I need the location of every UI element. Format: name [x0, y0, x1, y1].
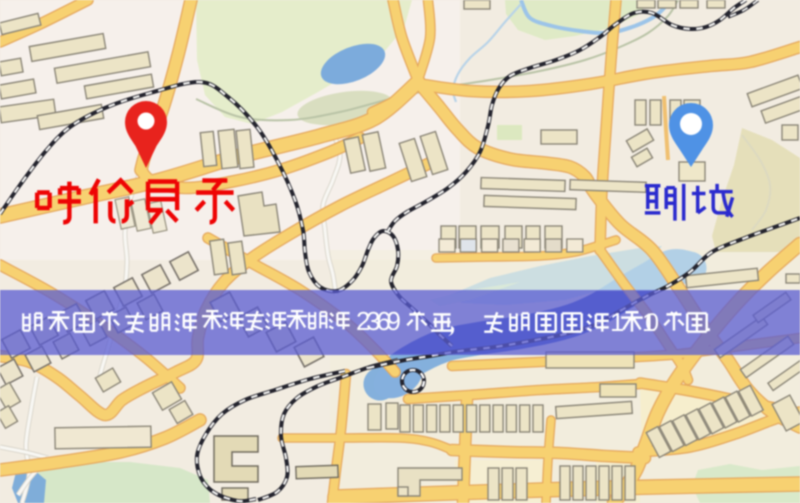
svg-text:1: 1	[610, 307, 624, 337]
svg-text:2369: 2369	[356, 306, 401, 336]
svg-text:.: .	[705, 307, 712, 337]
svg-text:10: 10	[642, 309, 659, 337]
